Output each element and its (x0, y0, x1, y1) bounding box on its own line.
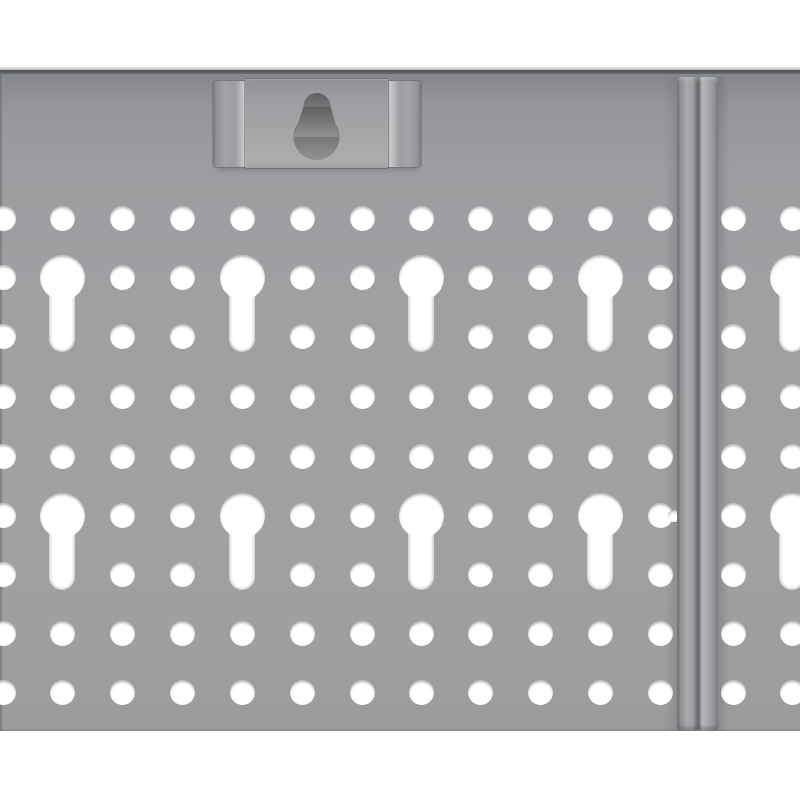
pegboard-hole (110, 621, 135, 646)
pegboard-hole (780, 384, 800, 409)
pegboard-hole (170, 680, 195, 705)
pegboard-hole (290, 680, 315, 705)
pegboard-hole (50, 621, 75, 646)
pegboard-hole (170, 444, 195, 469)
pegboard-hole (230, 680, 255, 705)
pegboard-hole (648, 621, 673, 646)
pegboard-hole (721, 562, 746, 587)
pegboard-hole (588, 680, 613, 705)
pegboard-hole (409, 384, 434, 409)
pegboard-hole (110, 206, 135, 231)
seam-strip-right (698, 77, 718, 731)
seam-strip-left (677, 77, 698, 731)
pegboard-hole (350, 324, 375, 349)
pegboard-hole (170, 324, 195, 349)
pegboard-hole (170, 562, 195, 587)
keyhole-slot-circle (40, 255, 85, 300)
pegboard-hole (721, 206, 746, 231)
pegboard-hole (528, 562, 553, 587)
pegboard-hole (648, 384, 673, 409)
pegboard-hole (528, 384, 553, 409)
pegboard-hole (648, 324, 673, 349)
pegboard-hole (110, 562, 135, 587)
bracket-left-flange (213, 81, 247, 167)
pegboard-hole (50, 206, 75, 231)
pegboard-hole (721, 621, 746, 646)
pegboard-hole (290, 324, 315, 349)
pegboard-hole (588, 621, 613, 646)
pegboard-hole (350, 680, 375, 705)
pegboard-hole (50, 680, 75, 705)
pegboard-hole (721, 680, 746, 705)
pegboard-hole (468, 265, 493, 290)
keyhole-slot-circle (399, 493, 444, 538)
pegboard-hole (290, 206, 315, 231)
pegboard-hole (468, 680, 493, 705)
pegboard-hole (230, 444, 255, 469)
pegboard-hole (528, 324, 553, 349)
pegboard-hole (528, 680, 553, 705)
pegboard-hole (648, 562, 673, 587)
pegboard-hole (290, 562, 315, 587)
pegboard-hole (721, 324, 746, 349)
pegboard-hole (780, 621, 800, 646)
pegboard-hole (528, 621, 553, 646)
pegboard-hole (350, 384, 375, 409)
pegboard-hole (170, 621, 195, 646)
pegboard-hole (468, 562, 493, 587)
pegboard-hole (350, 621, 375, 646)
pegboard-hole (409, 444, 434, 469)
pegboard-hole (721, 265, 746, 290)
pegboard-hole (290, 265, 315, 290)
pegboard-hole (528, 444, 553, 469)
pegboard-hole (350, 562, 375, 587)
pegboard-hole (110, 384, 135, 409)
pegboard-hole (290, 384, 315, 409)
pegboard-hole (468, 444, 493, 469)
pegboard-hole (780, 444, 800, 469)
pegboard-hole (468, 503, 493, 528)
pegboard-hole (648, 680, 673, 705)
bracket-right-flange (387, 81, 421, 167)
pegboard-hole (170, 384, 195, 409)
pegboard-hole (170, 503, 195, 528)
pegboard-hole (648, 265, 673, 290)
pegboard-hole (350, 206, 375, 231)
pegboard-hole (170, 206, 195, 231)
keyhole-slot-circle (40, 493, 85, 538)
pegboard-hole (350, 503, 375, 528)
pegboard-hole (528, 503, 553, 528)
keyhole-slot-circle (578, 493, 623, 538)
pegboard-hole (528, 265, 553, 290)
pegboard-hole (468, 206, 493, 231)
bracket-keyhole-slot (286, 92, 347, 172)
keyhole-slot-circle (220, 255, 265, 300)
pegboard-hole (170, 265, 195, 290)
keyhole-slot-circle (399, 255, 444, 300)
pegboard-hole (588, 206, 613, 231)
keyhole-slot-circle (578, 255, 623, 300)
pegboard-hole (468, 384, 493, 409)
pegboard-hole (110, 503, 135, 528)
pegboard-hole (468, 324, 493, 349)
pegboard-hole (588, 384, 613, 409)
pegboard-hole (780, 206, 800, 231)
pegboard-hole (648, 444, 673, 469)
keyhole-slot-circle (220, 493, 265, 538)
pegboard-hole (588, 444, 613, 469)
pegboard-hole (290, 621, 315, 646)
pegboard-hole (110, 324, 135, 349)
pegboard-hole (230, 206, 255, 231)
pegboard-hole (648, 206, 673, 231)
pegboard-hole (290, 444, 315, 469)
pegboard-hole (50, 444, 75, 469)
pegboard-hole (350, 444, 375, 469)
pegboard-photo (0, 0, 800, 800)
pegboard-hole (721, 444, 746, 469)
pegboard-hole (409, 206, 434, 231)
pegboard-hole (780, 680, 800, 705)
pegboard-hole (290, 503, 315, 528)
pegboard-hole (721, 503, 746, 528)
pegboard-hole (528, 206, 553, 231)
pegboard-hole (230, 621, 255, 646)
pegboard-hole (50, 384, 75, 409)
pegboard-hole (409, 621, 434, 646)
pegboard-hole (468, 621, 493, 646)
pegboard-hole (409, 680, 434, 705)
pegboard-hole (350, 265, 375, 290)
pegboard-hole (110, 444, 135, 469)
pegboard-hole (230, 384, 255, 409)
pegboard-hole (721, 384, 746, 409)
pegboard-hole (110, 265, 135, 290)
pegboard-hole (110, 680, 135, 705)
